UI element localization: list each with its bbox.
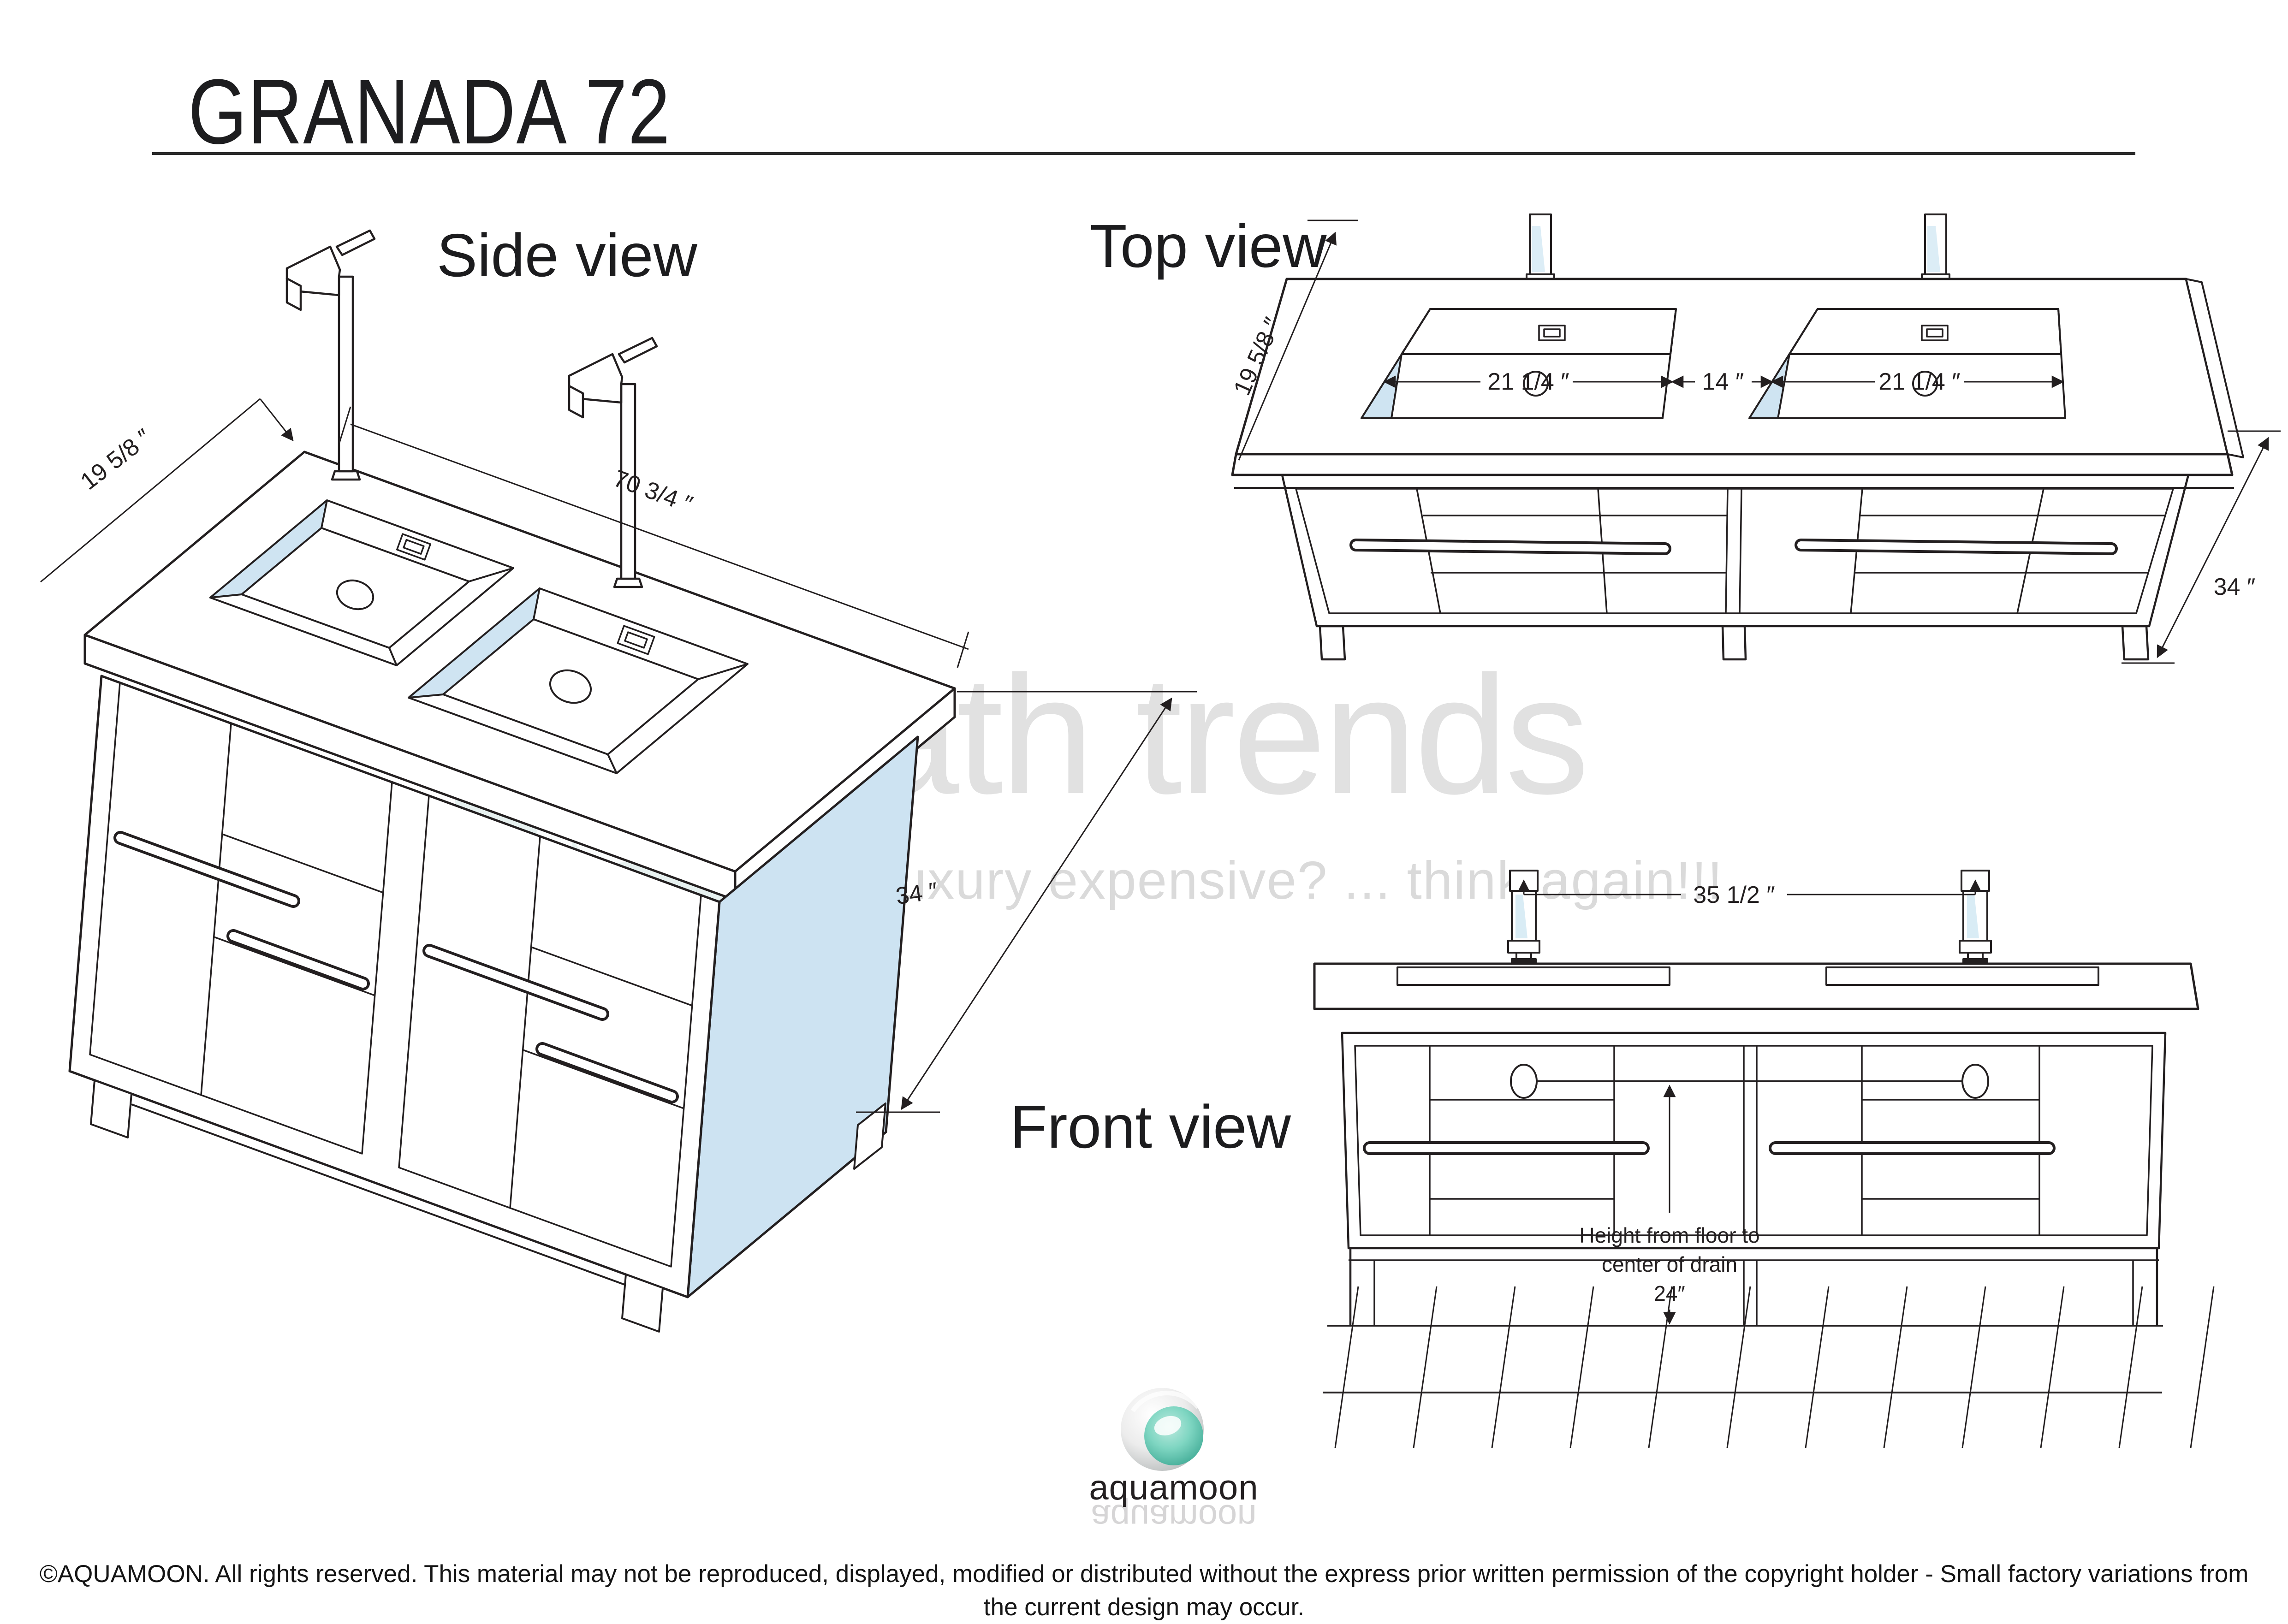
top-dim-height-label: 34 ″ bbox=[2214, 574, 2256, 600]
front-drain-note-line3: 24″ bbox=[1654, 1281, 1685, 1305]
top-cabinet bbox=[1282, 475, 2188, 659]
aquamoon-wordmark-reflection: aquamoon bbox=[1091, 1497, 1256, 1536]
top-dim-sink-right-label: 21 1/4 ″ bbox=[1878, 368, 1960, 395]
front-cabinet bbox=[1342, 1033, 2165, 1326]
top-dim-between-label: 14 ″ bbox=[1702, 368, 1744, 395]
top-view-drawing: 19 5/8 ″ 21 1/4 ″ 14 ″ 21 1/4 ″ 34 ″ bbox=[1222, 198, 2283, 867]
side-view-drawing: 19 5/8 ″ 70 3/4 ″ 34 ″ bbox=[28, 194, 1204, 1346]
front-dim-faucet-spacing-label: 35 1/2 ″ bbox=[1693, 882, 1775, 908]
top-dim-sink-left-label: 21 1/4 ″ bbox=[1487, 368, 1569, 395]
front-drain-note-line1: Height from floor to bbox=[1579, 1223, 1759, 1247]
page-title: GRANADA 72 bbox=[188, 59, 671, 165]
front-drain-markers bbox=[1511, 1065, 1988, 1098]
front-floor bbox=[1323, 1286, 2214, 1448]
aquamoon-moon-icon bbox=[1121, 1388, 1204, 1471]
front-countertop bbox=[1314, 964, 2198, 1009]
side-faucet-left bbox=[287, 231, 374, 480]
copyright-line1: ©AQUAMOON. All rights reserved. This mat… bbox=[0, 1558, 2288, 1591]
front-drain-note-line2: center of drain bbox=[1602, 1252, 1737, 1276]
copyright-line2: the current design may occur. bbox=[0, 1591, 2288, 1624]
top-cabinet-handles bbox=[1356, 545, 2111, 549]
title-rule bbox=[152, 152, 2135, 155]
side-dim-height-label: 34 ″ bbox=[894, 877, 939, 910]
side-dim-depth-label: 19 5/8 ″ bbox=[76, 424, 157, 495]
side-faucet-right bbox=[569, 338, 657, 587]
copyright-footer: ©AQUAMOON. All rights reserved. This mat… bbox=[0, 1558, 2288, 1624]
aquamoon-logo: aquamoon aquamoon bbox=[1088, 1383, 1264, 1535]
front-view-drawing: 35 1/2 ″ Height from floor to center of … bbox=[1314, 848, 2260, 1462]
